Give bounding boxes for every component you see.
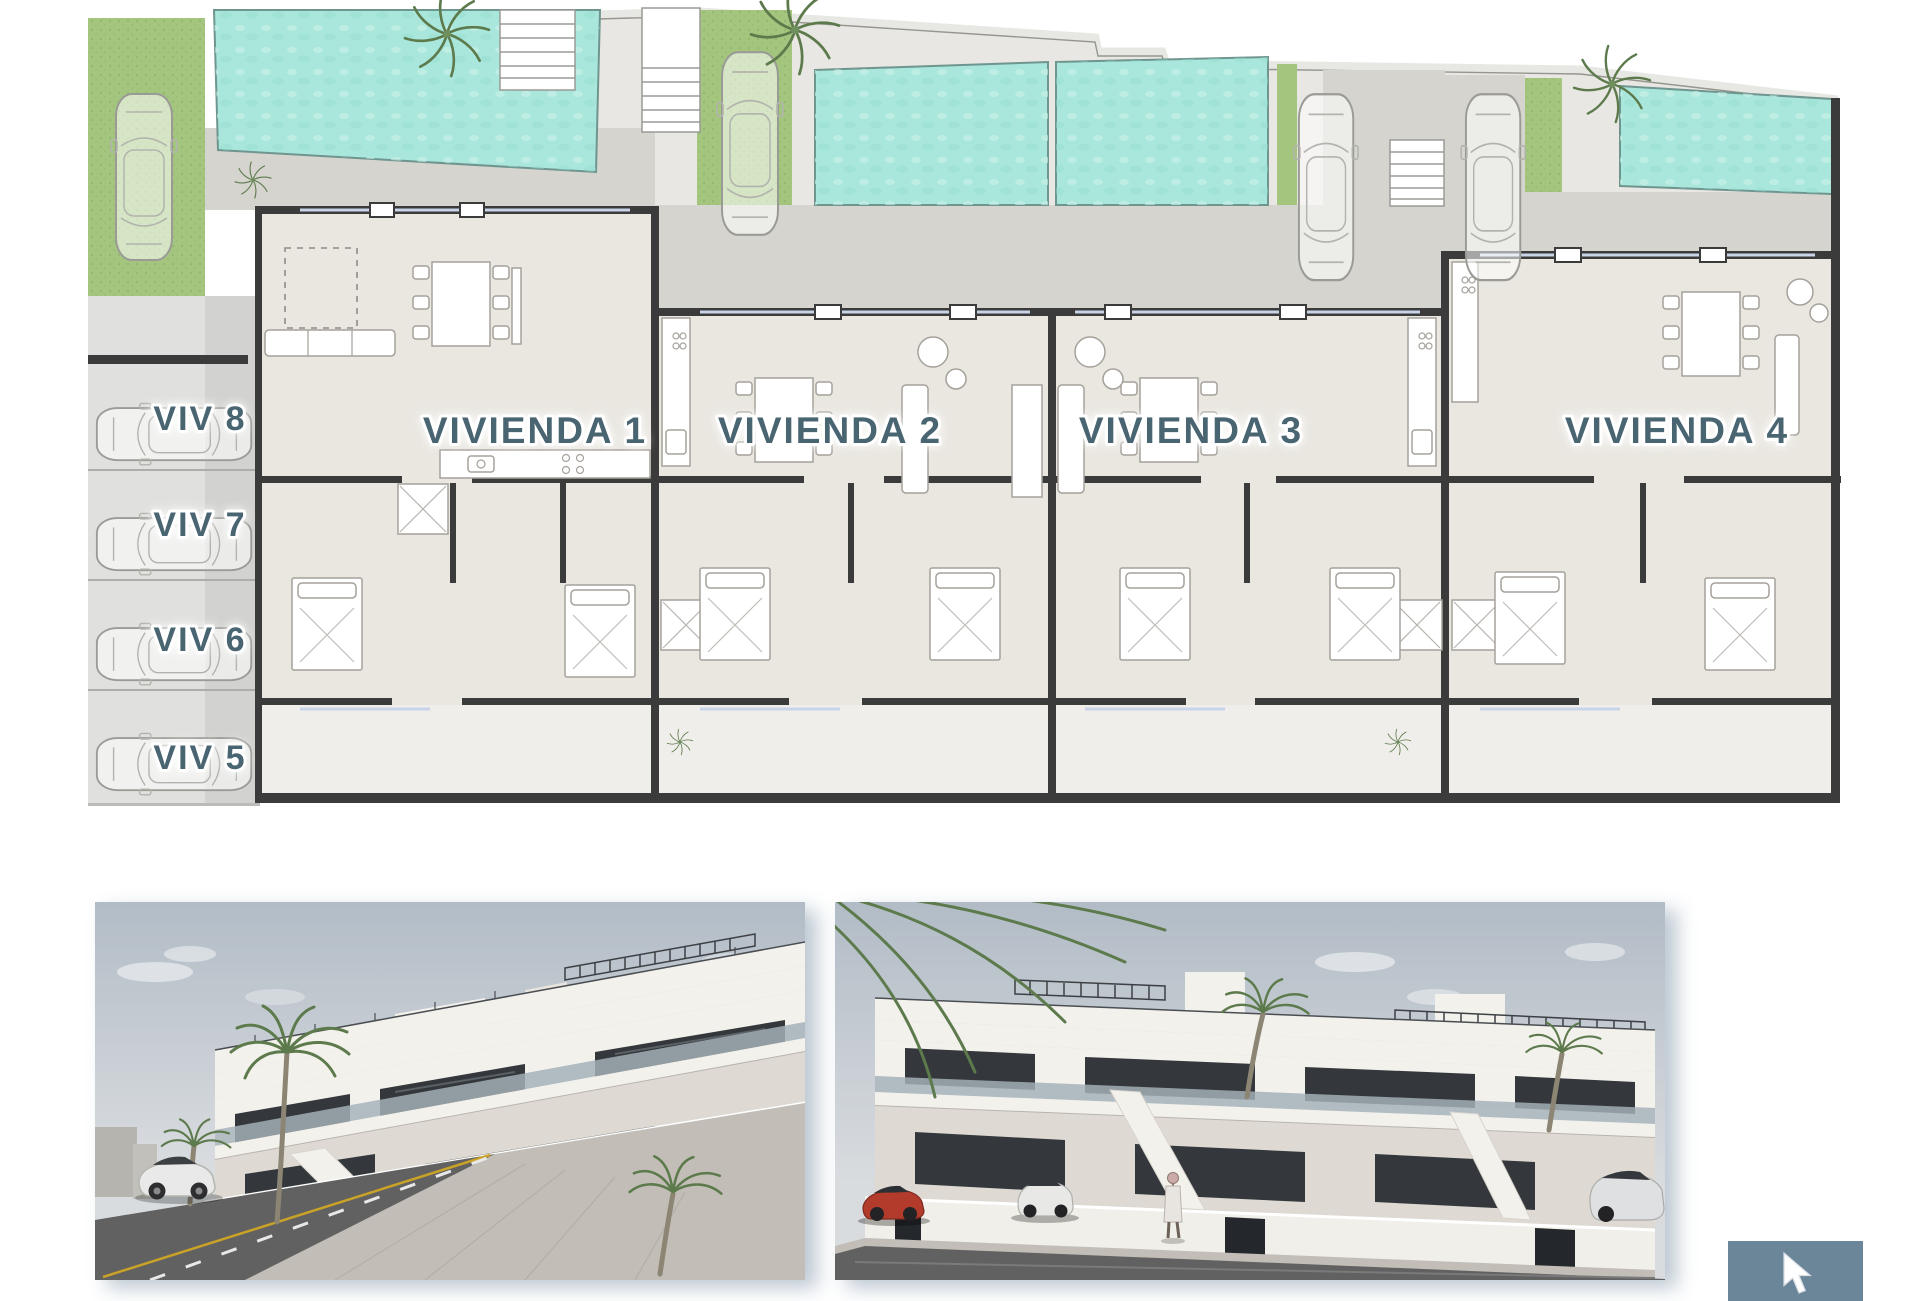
car-garden-4 — [1461, 94, 1525, 280]
unit-label-vivienda-1: VIVIENDA 1 — [423, 410, 647, 451]
exterior-render-left — [95, 902, 805, 1280]
mouse-cursor-icon — [1784, 1253, 1810, 1293]
cursor-overlay-panel — [1728, 1241, 1863, 1301]
parking-label-viv6: VIV 6 — [153, 621, 246, 659]
car-garden-2 — [717, 52, 783, 235]
stair-3 — [1390, 140, 1444, 206]
parking-label-viv5: VIV 5 — [153, 739, 246, 777]
car-garden-1 — [111, 94, 177, 260]
parking-label-viv7: VIV 7 — [153, 506, 246, 544]
parking-label-viv8: VIV 8 — [153, 400, 246, 438]
floor-plan: VIVIENDA 1 VIVIENDA 2 VIVIENDA 3 VIVIEND… — [0, 0, 1920, 880]
exterior-render-right — [835, 902, 1665, 1280]
unit-label-vivienda-4: VIVIENDA 4 — [1565, 410, 1789, 451]
stair-2 — [642, 8, 700, 132]
stair-1 — [500, 10, 575, 90]
unit-label-vivienda-2: VIVIENDA 2 — [718, 410, 942, 451]
car-garden-3 — [1294, 94, 1358, 280]
unit-label-vivienda-3: VIVIENDA 3 — [1079, 410, 1303, 451]
